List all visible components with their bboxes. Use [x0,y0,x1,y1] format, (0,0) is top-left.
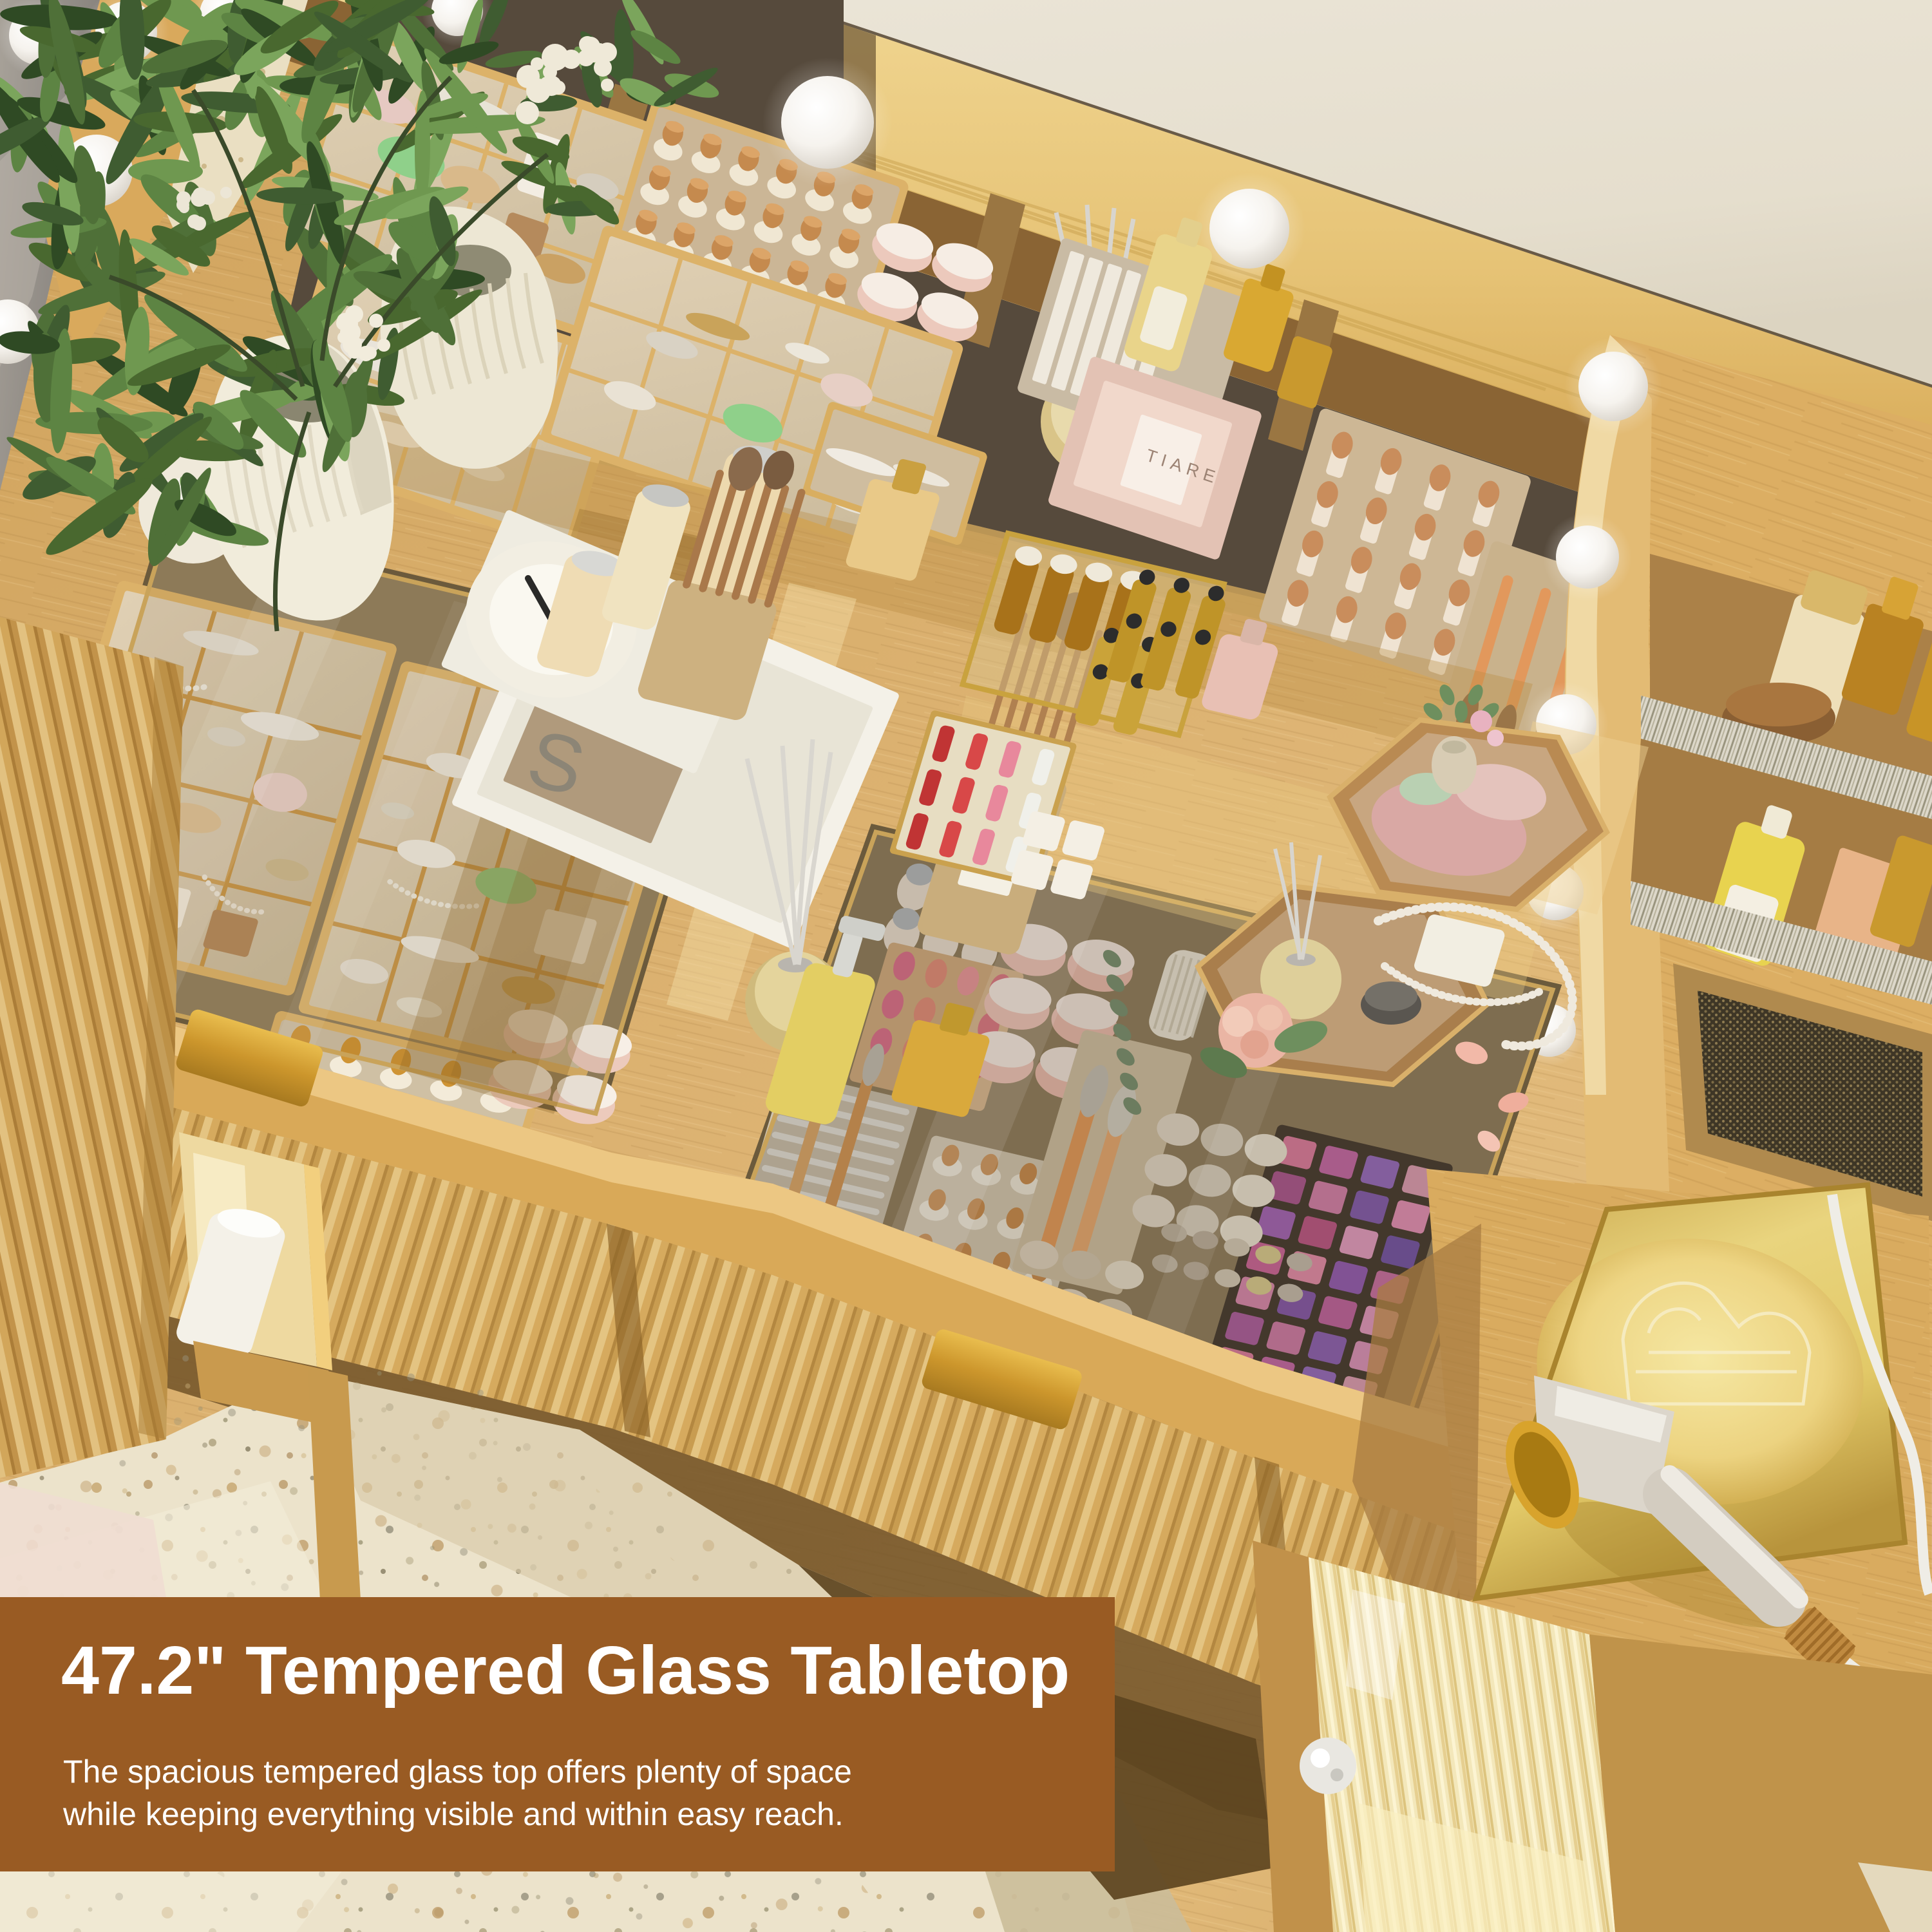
svg-text:while keeping everything visib: while keeping everything visible and wit… [62,1796,844,1832]
svg-text:47.2" Tempered Glass Tabletop: 47.2" Tempered Glass Tabletop [61,1633,1070,1709]
svg-text:The spacious tempered glass to: The spacious tempered glass top offers p… [63,1754,852,1790]
